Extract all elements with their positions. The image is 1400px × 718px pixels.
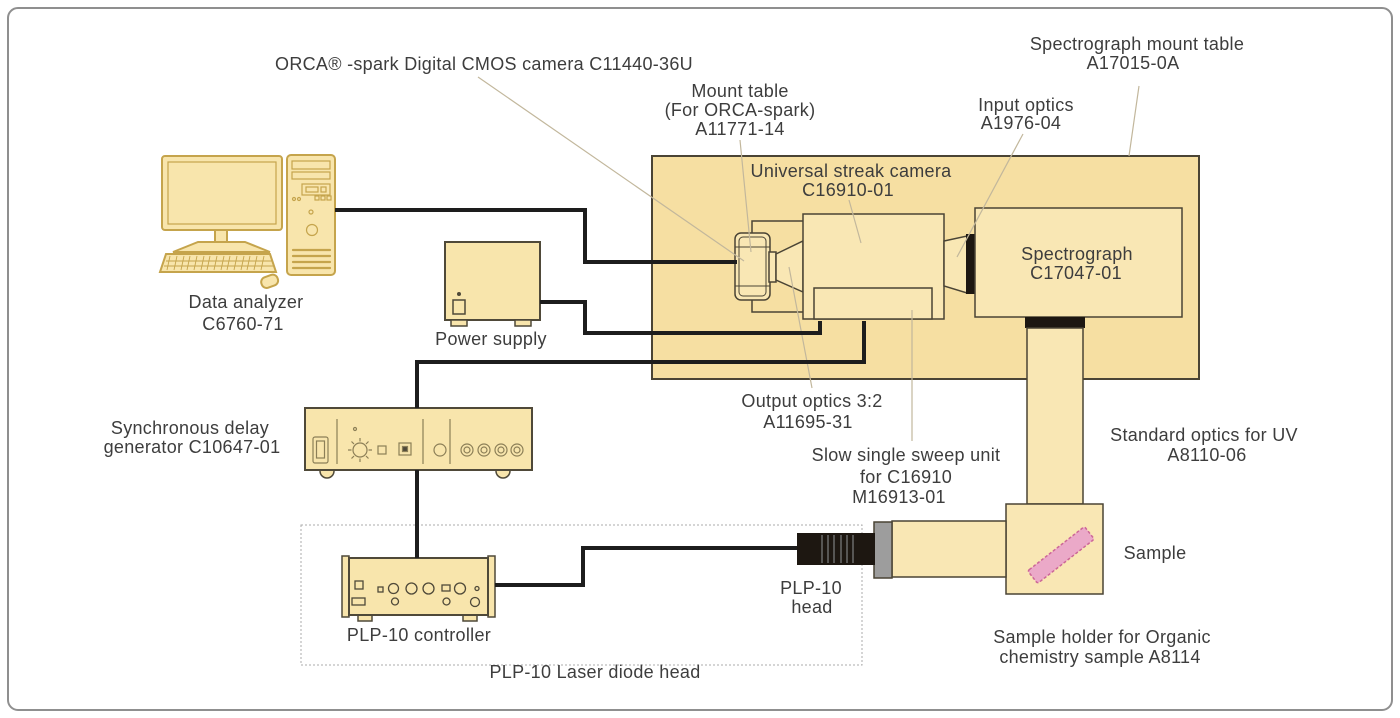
label-input-optics-1: Input optics — [978, 95, 1074, 115]
power-supply-foot — [515, 320, 531, 326]
camera-lens-mount — [769, 252, 776, 282]
label-spectrograph-mount-table-2: A17015-0A — [1087, 53, 1180, 73]
label-data-analyzer-1: Data analyzer — [189, 292, 304, 312]
label-data-analyzer-2: C6760-71 — [202, 314, 283, 334]
spectrograph-bottom-flange — [1025, 317, 1085, 328]
power-led — [457, 292, 461, 296]
label-output-optics-1: Output optics 3:2 — [741, 391, 882, 411]
monitor — [162, 156, 282, 230]
plp10-controller-unit — [342, 556, 495, 621]
controller-side-panel — [488, 556, 495, 617]
monitor-neck — [215, 230, 227, 242]
label-slow-sweep-unit-3: M16913-01 — [852, 487, 946, 507]
label-sample: Sample — [1124, 543, 1187, 563]
power-supply-foot — [451, 320, 467, 326]
label-sync-delay-generator-1: Synchronous delay — [111, 418, 269, 438]
power-supply-unit — [445, 242, 540, 326]
label-streak-camera-1: Universal streak camera — [751, 161, 953, 181]
label-sample-holder-1: Sample holder for Organic — [993, 627, 1211, 647]
label-power-supply: Power supply — [435, 329, 547, 349]
data-analyzer-computer — [160, 155, 335, 289]
sync-delay-generator-unit — [305, 408, 532, 478]
label-slow-sweep-unit-1: Slow single sweep unit — [812, 445, 1001, 465]
sync-delay-generator-box — [305, 408, 532, 470]
label-plp10-controller: PLP-10 controller — [347, 625, 491, 645]
tube-collar — [874, 522, 892, 578]
label-spectrograph-1: Spectrograph — [1021, 244, 1133, 264]
label-sync-delay-generator-2: generator C10647-01 — [104, 437, 281, 457]
beam-tube — [892, 521, 1006, 577]
label-orca-camera: ORCA® -spark Digital CMOS camera C11440-… — [275, 54, 693, 74]
label-output-optics-2: A11695-31 — [763, 412, 852, 432]
controller-side-panel — [342, 556, 349, 617]
label-input-optics-2: A1976-04 — [981, 113, 1061, 133]
input-optics-flange — [966, 234, 975, 294]
label-plp10-head-2: head — [791, 597, 832, 617]
plp10-controller-box — [349, 558, 488, 615]
uv-optics-column — [1027, 328, 1083, 504]
label-standard-optics-uv-2: A8110-06 — [1167, 445, 1246, 465]
label-mount-table-3: A11771-14 — [695, 119, 784, 139]
label-mount-table-2: (For ORCA-spark) — [665, 100, 816, 120]
streak-camera-system-diagram: ORCA® -spark Digital CMOS camera C11440-… — [0, 0, 1400, 718]
keyboard — [160, 254, 276, 272]
label-sample-holder-2: chemistry sample A8114 — [999, 647, 1200, 667]
diagram-page: ORCA® -spark Digital CMOS camera C11440-… — [0, 0, 1400, 718]
plp10-head-body — [797, 533, 875, 565]
label-streak-camera-2: C16910-01 — [802, 180, 894, 200]
label-slow-sweep-unit-2: for C16910 — [860, 467, 952, 487]
label-spectrograph-mount-table-1: Spectrograph mount table — [1030, 34, 1244, 54]
sweep-unit-box — [814, 288, 932, 319]
label-plp10-head-1: PLP-10 — [780, 578, 842, 598]
label-spectrograph-2: C17047-01 — [1030, 263, 1122, 283]
label-plp10-laser-diode-head: PLP-10 Laser diode head — [489, 662, 700, 682]
label-mount-table-1: Mount table — [691, 81, 788, 101]
orca-spark-camera — [735, 233, 776, 300]
label-standard-optics-uv-1: Standard optics for UV — [1110, 425, 1298, 445]
power-supply-box — [445, 242, 540, 320]
